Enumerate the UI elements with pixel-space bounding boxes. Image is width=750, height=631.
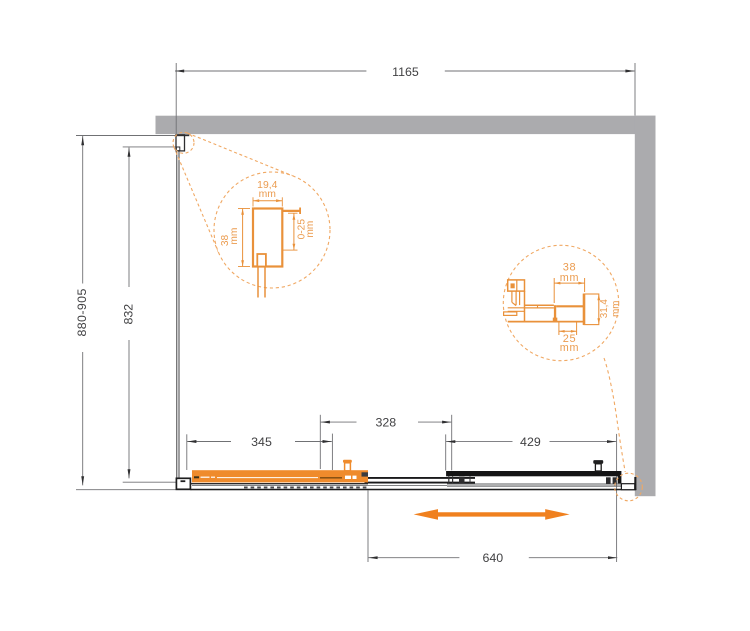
svg-text:429: 429 bbox=[520, 435, 541, 449]
svg-text:31,4: 31,4 bbox=[599, 299, 610, 319]
svg-text:345: 345 bbox=[251, 435, 272, 449]
svg-text:880-905: 880-905 bbox=[75, 288, 89, 336]
svg-text:mm: mm bbox=[610, 301, 621, 317]
svg-text:mm: mm bbox=[560, 342, 580, 354]
svg-text:mm: mm bbox=[560, 272, 580, 284]
svg-text:mm: mm bbox=[259, 189, 276, 200]
svg-text:1165: 1165 bbox=[392, 65, 419, 79]
svg-text:328: 328 bbox=[375, 416, 396, 430]
svg-text:832: 832 bbox=[121, 304, 135, 325]
svg-text:640: 640 bbox=[482, 551, 503, 565]
svg-text:mm: mm bbox=[229, 228, 240, 245]
svg-text:mm: mm bbox=[305, 221, 316, 238]
